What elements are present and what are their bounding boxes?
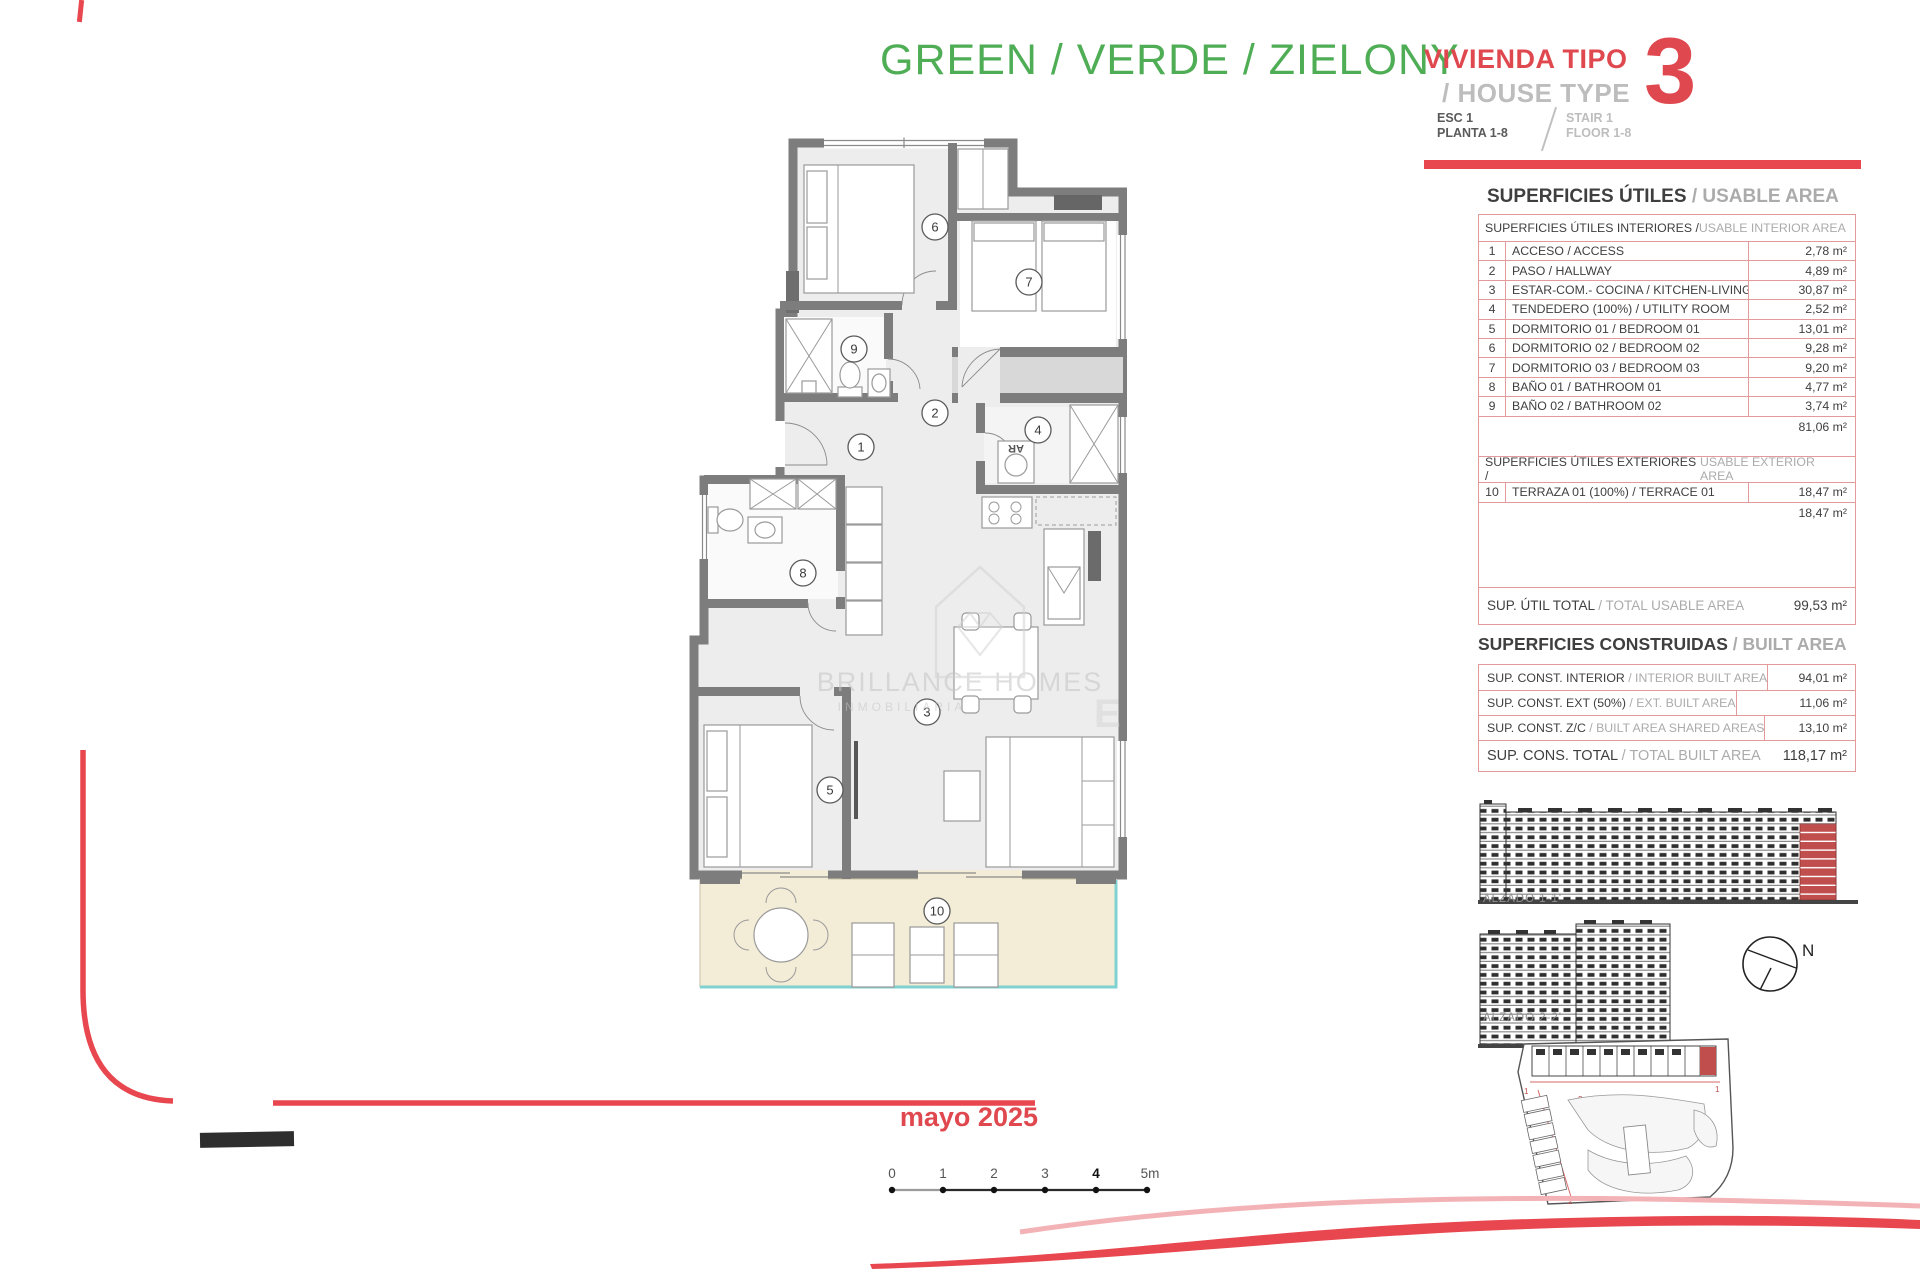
- usable-area-title: SUPERFICIES ÚTILES / USABLE AREA: [1487, 186, 1839, 208]
- room-circle: 10: [924, 898, 950, 924]
- pool: [1624, 1125, 1651, 1175]
- esc-label: ESC 1: [1437, 111, 1508, 126]
- watermark-monogram: E: [1094, 692, 1121, 736]
- watermark-name: BRILLANCE HOMES: [817, 667, 1104, 697]
- table-row: 8BAÑO 01 / BATHROOM 014,77 m²: [1479, 377, 1855, 396]
- building-row: [1532, 1046, 1716, 1076]
- hob: [982, 497, 1032, 528]
- utility-closet: [1070, 405, 1118, 483]
- scale-tick: 0: [888, 1166, 896, 1181]
- scale-tick: 1: [939, 1166, 947, 1181]
- shower: [786, 319, 832, 393]
- vanity: [750, 479, 836, 509]
- tv-unit: [854, 741, 858, 819]
- dark-fragment: [200, 1131, 294, 1148]
- table-row: 3ESTAR-COM.- COCINA / KITCHEN-LIVING30,8…: [1479, 280, 1855, 299]
- toilet: [708, 507, 743, 533]
- washer-label: AR: [1008, 442, 1024, 454]
- built-title-es: SUPERFICIES CONSTRUIDAS: [1478, 634, 1733, 654]
- room-circle: 1: [848, 434, 874, 460]
- table-row: 4TENDEDERO (100%) / UTILITY ROOM2,52 m²: [1479, 299, 1855, 318]
- coffee-table: [944, 771, 980, 821]
- room-circle: 7: [1016, 269, 1042, 295]
- usable-total-row: SUP. ÚTIL TOTAL / TOTAL USABLE AREA 99,5…: [1479, 587, 1855, 624]
- corner-tick-red: [77, 0, 84, 22]
- floor-plan: AR: [686, 135, 1127, 992]
- highlighted-unit-site: [1700, 1047, 1716, 1075]
- header-red-bar: [1424, 160, 1861, 169]
- table-row: SUP. CONST. Z/C / BUILT AREA SHARED AREA…: [1479, 715, 1855, 740]
- watermark-subtitle: INMOBILIARIA: [838, 700, 967, 714]
- svg-text:2: 2: [931, 406, 938, 421]
- ac-unit: [1054, 195, 1102, 210]
- scale-tick: 2: [990, 1166, 998, 1181]
- house-type-number: 3: [1644, 26, 1696, 115]
- table-row: 1ACCESO / ACCESS2,78 m²: [1479, 241, 1855, 260]
- svg-text:10: 10: [930, 904, 944, 919]
- room-circle: 2: [922, 400, 948, 426]
- floor-label: FLOOR 1-8: [1566, 126, 1631, 141]
- header-slash-divider: [1541, 107, 1557, 151]
- exterior-subtotal-row: 18,47 m²: [1479, 502, 1855, 587]
- built-area-table: SUP. CONST. INTERIOR / INTERIOR BUILT AR…: [1478, 664, 1856, 772]
- section-marker: 1: [1524, 1087, 1529, 1096]
- scale-tick: 4: [1092, 1166, 1100, 1181]
- exterior-header-es: SUPERFICIES ÚTILES EXTERIORES /: [1485, 455, 1700, 483]
- sun-loungers: [852, 923, 998, 987]
- elevation-1: [1478, 798, 1858, 908]
- north-compass: N: [1738, 928, 1828, 1000]
- built-area-title: SUPERFICIES CONSTRUIDAS / BUILT AREA: [1478, 634, 1847, 655]
- bedroom5-bed: [704, 725, 812, 867]
- interior-header-en: USABLE INTERIOR AREA: [1699, 221, 1846, 235]
- usable-title-es: SUPERFICIES ÚTILES: [1487, 186, 1687, 207]
- table-row: 6DORMITORIO 02 / BEDROOM 029,28 m²: [1479, 338, 1855, 357]
- usable-total-value: 99,53 m²: [1794, 598, 1847, 613]
- plan-sheet: GREEN / VERDE / ZIELONY VIVIENDA TIPO / …: [0, 0, 1920, 1280]
- stair-floor-en: STAIR 1 FLOOR 1-8: [1566, 111, 1631, 141]
- room-circle: 8: [790, 560, 816, 586]
- usable-area-table: SUPERFICIES ÚTILES INTERIORES / USABLE I…: [1478, 214, 1856, 625]
- compass-circle: [1743, 937, 1797, 991]
- built-title-en: / BUILT AREA: [1733, 634, 1847, 654]
- usable-title-en: / USABLE AREA: [1692, 186, 1839, 207]
- room-circle: 4: [1025, 417, 1051, 443]
- elevation-2-label: ALZADO 2-2': [1483, 1012, 1562, 1024]
- exterior-header-row: SUPERFICIES ÚTILES EXTERIORES / USABLE E…: [1479, 456, 1855, 482]
- toilet: [838, 362, 862, 397]
- stair-floor-es: ESC 1 PLANTA 1-8: [1437, 111, 1508, 141]
- highlighted-unit: [1800, 824, 1836, 900]
- table-row: 7DORMITORIO 03 / BEDROOM 039,20 m²: [1479, 357, 1855, 376]
- svg-text:5: 5: [826, 783, 833, 798]
- room-circle: 6: [922, 214, 948, 240]
- svg-text:7: 7: [1025, 275, 1032, 290]
- scale-tick: 3: [1041, 1166, 1049, 1181]
- interior-header-es: SUPERFICIES ÚTILES INTERIORES /: [1485, 221, 1699, 235]
- interior-header-row: SUPERFICIES ÚTILES INTERIORES / USABLE I…: [1479, 215, 1855, 241]
- svg-text:8: 8: [799, 566, 806, 581]
- section-marker: 1: [1715, 1085, 1720, 1094]
- elevation-1-label: ALZADO 1-1': [1483, 893, 1562, 905]
- interior-subtotal-row: 81,06 m²: [1479, 416, 1855, 456]
- svg-text:4: 4: [1034, 423, 1041, 438]
- planta-label: PLANTA 1-8: [1437, 126, 1508, 141]
- page-title: GREEN / VERDE / ZIELONY: [880, 36, 1416, 85]
- svg-text:9: 9: [850, 342, 857, 357]
- table-row: 9BAÑO 02 / BATHROOM 023,74 m²: [1479, 396, 1855, 415]
- north-label: N: [1802, 941, 1814, 960]
- built-total-row: SUP. CONS. TOTAL / TOTAL BUILT AREA 118,…: [1479, 740, 1855, 771]
- table-row: 10TERRAZA 01 (100%) / TERRACE 0118,47 m²: [1479, 482, 1855, 502]
- house-type-label-en: / HOUSE TYPE: [1442, 78, 1630, 109]
- exterior-header-en: USABLE EXTERIOR AREA: [1700, 455, 1849, 483]
- table-row: SUP. CONST. EXT (50%) / EXT. BUILT AREA …: [1479, 690, 1855, 715]
- scale-tick: 5m: [1141, 1166, 1160, 1181]
- table-row: 2PASO / HALLWAY4,89 m²: [1479, 260, 1855, 279]
- room-circle: 9: [841, 336, 867, 362]
- svg-text:6: 6: [931, 220, 938, 235]
- sink: [868, 369, 890, 397]
- table-row: SUP. CONST. INTERIOR / INTERIOR BUILT AR…: [1479, 665, 1855, 690]
- bottom-swoosh: [810, 1180, 1920, 1280]
- room-circle: 5: [817, 777, 843, 803]
- built-total-value: 118,17 m²: [1783, 748, 1847, 764]
- svg-text:1: 1: [857, 440, 864, 455]
- hall-wardrobe: [846, 487, 882, 635]
- stair-label: STAIR 1: [1566, 111, 1631, 126]
- washing-machine: AR: [998, 441, 1034, 483]
- date-label: mayo 2025: [880, 1102, 1038, 1133]
- fridge: [1088, 531, 1101, 581]
- sink: [748, 517, 782, 543]
- house-type-label-es: VIVIENDA TIPO: [1424, 44, 1628, 75]
- table-row: 5DORMITORIO 01 / BEDROOM 0113,01 m²: [1479, 319, 1855, 338]
